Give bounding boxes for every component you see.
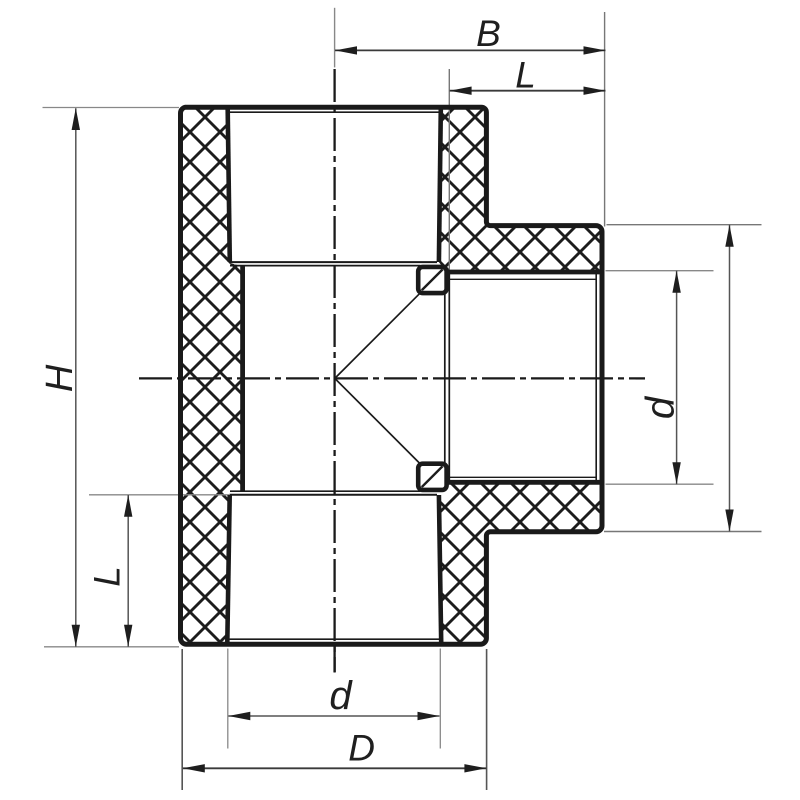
svg-text:H: H	[39, 364, 81, 392]
svg-text:d: d	[329, 674, 353, 718]
svg-text:D: D	[348, 728, 375, 769]
svg-text:L: L	[515, 55, 536, 96]
svg-text:d: d	[639, 395, 683, 419]
svg-text:L: L	[86, 566, 127, 587]
svg-text:B: B	[476, 13, 501, 54]
